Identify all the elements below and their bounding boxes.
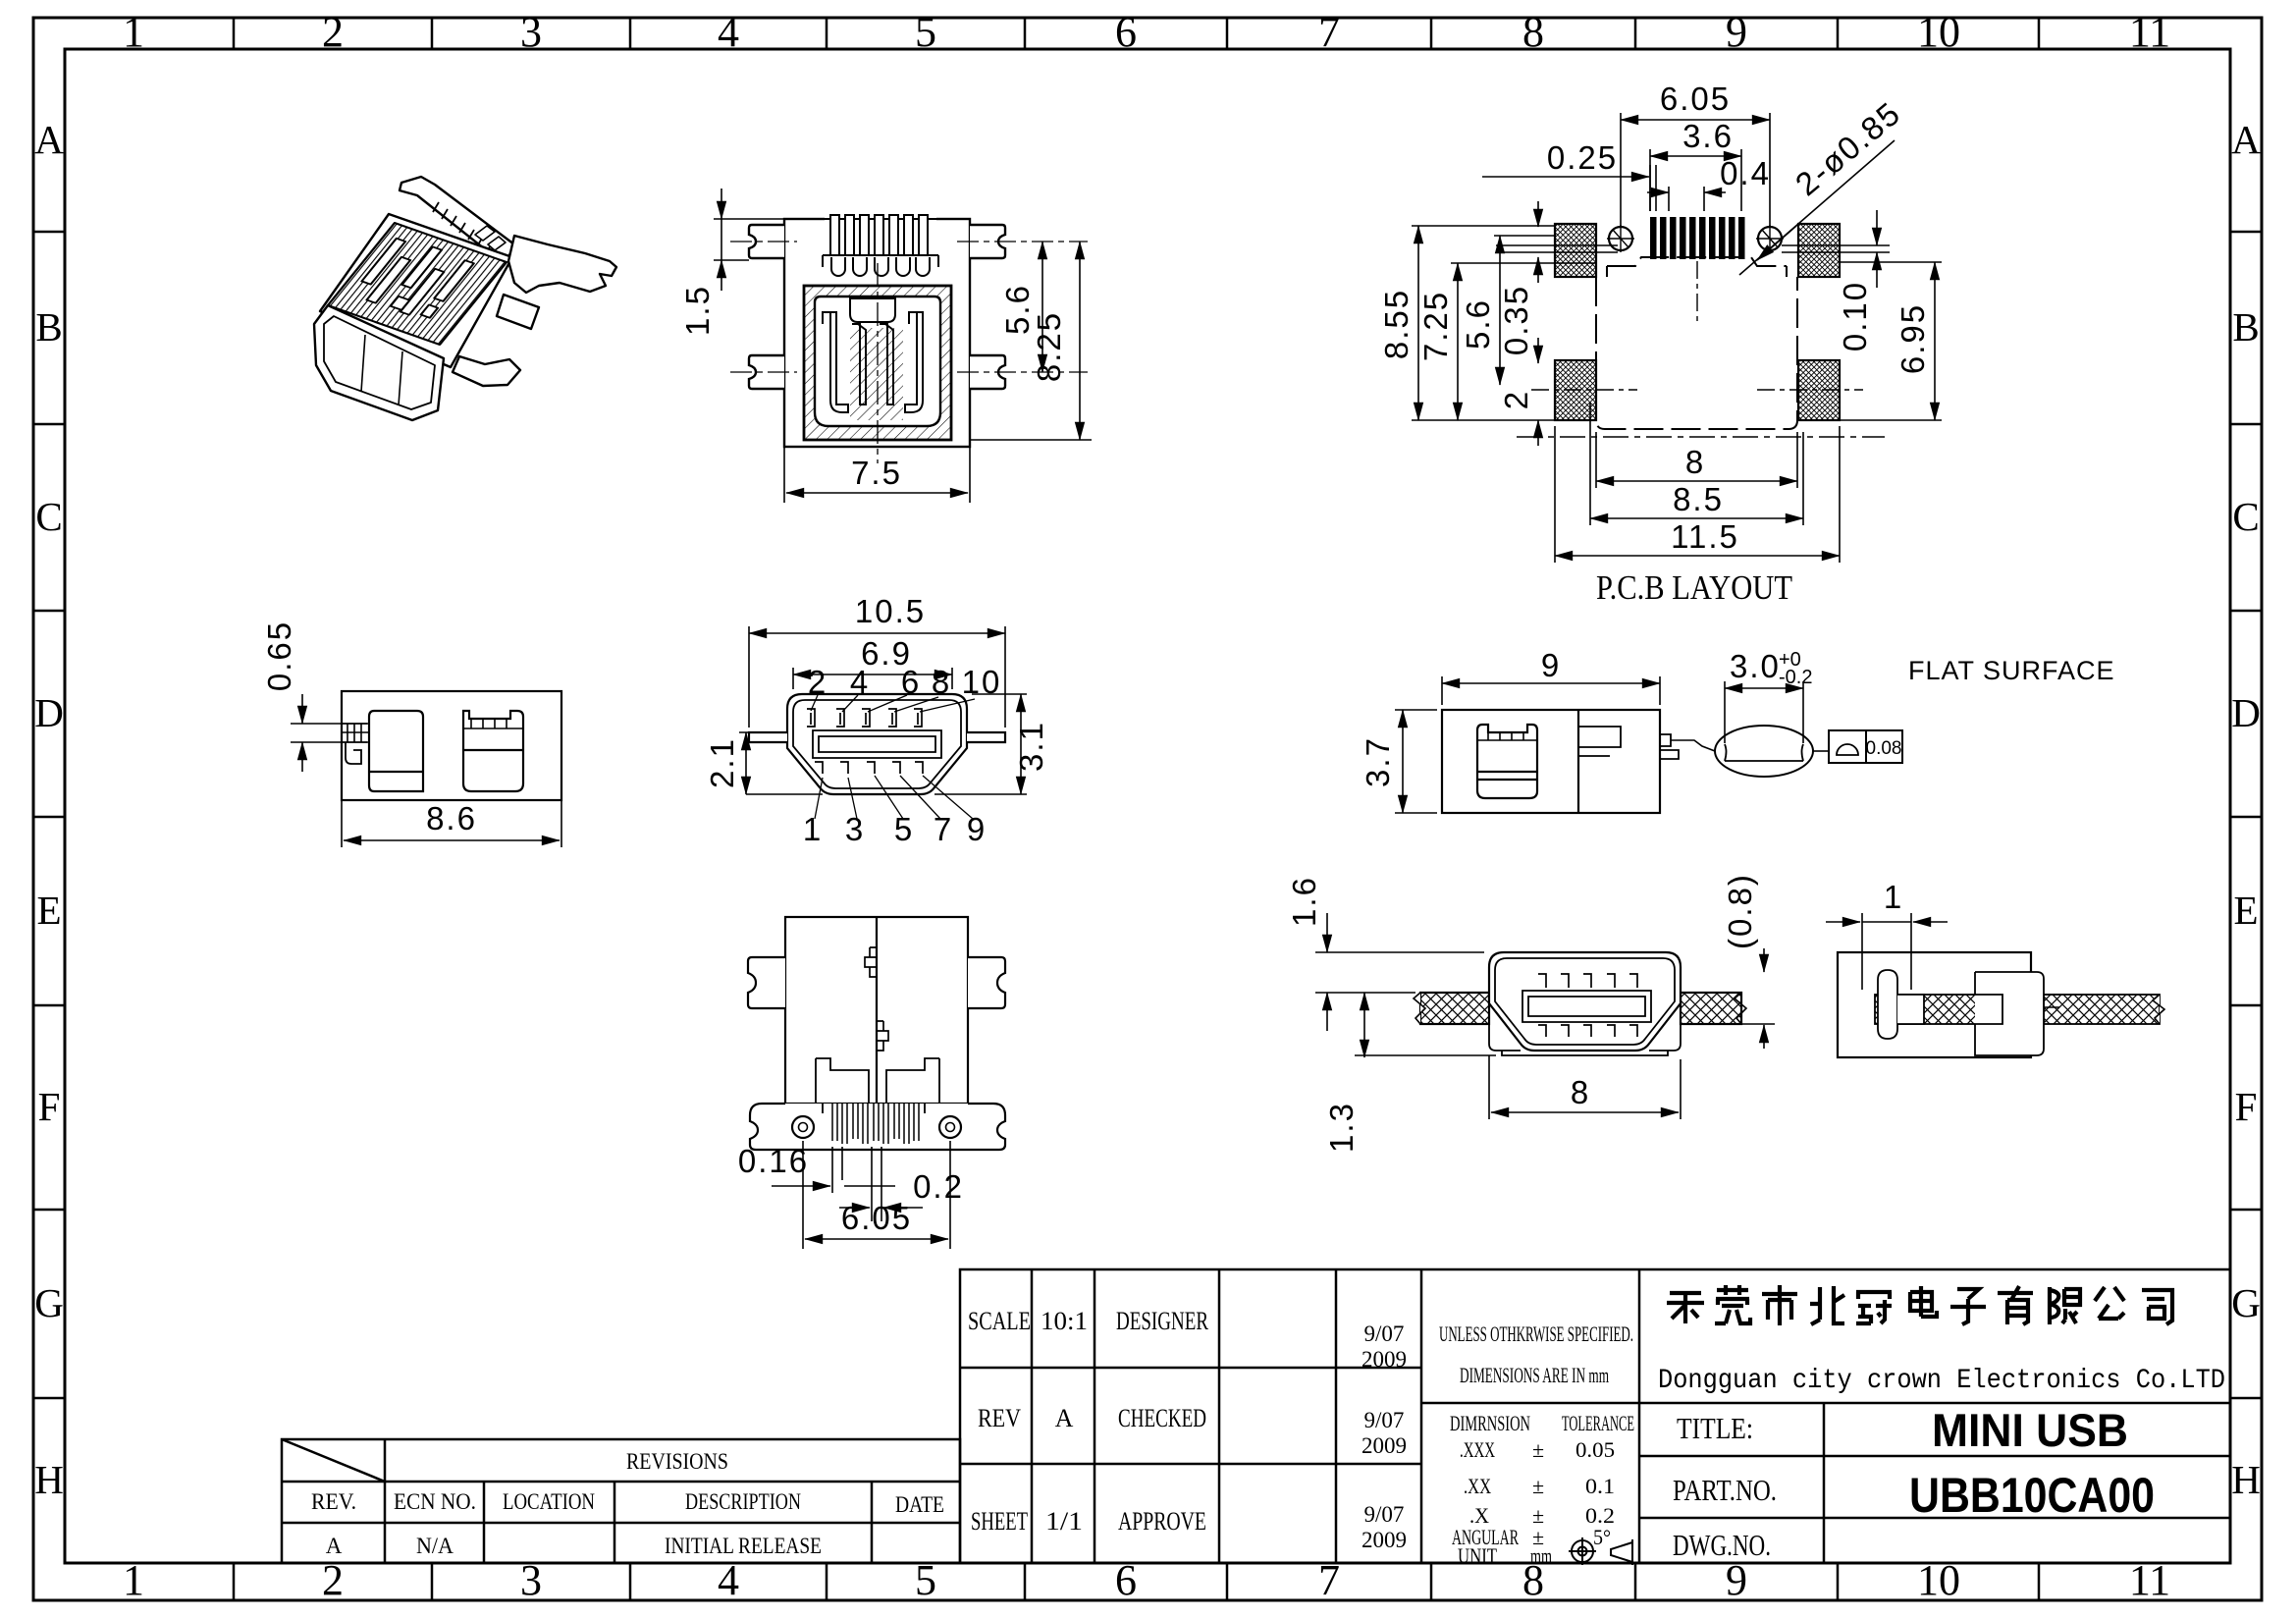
svg-text:DATE: DATE [895, 1492, 944, 1517]
svg-text:Dongguan city crown Electronic: Dongguan city crown Electronics Co.LTD [1658, 1366, 2225, 1396]
svg-text:8: 8 [1685, 444, 1705, 480]
svg-text:.XXX: .XXX [1460, 1437, 1495, 1462]
svg-text:6.05: 6.05 [1660, 81, 1731, 117]
svg-text:5°: 5° [1593, 1525, 1611, 1549]
svg-text:E: E [2233, 888, 2258, 933]
svg-text:0.16: 0.16 [738, 1143, 809, 1179]
svg-text:0.25: 0.25 [1547, 139, 1618, 176]
svg-text:0.10: 0.10 [1837, 281, 1873, 351]
svg-text:A: A [2231, 117, 2261, 162]
svg-text:8.25: 8.25 [1031, 311, 1067, 382]
svg-text:B: B [35, 304, 62, 350]
svg-text:9/07: 9/07 [1364, 1408, 1405, 1432]
svg-text:CHECKED: CHECKED [1118, 1404, 1206, 1432]
svg-text:0.65: 0.65 [261, 620, 297, 691]
svg-text:A: A [326, 1534, 343, 1558]
svg-text:9/07: 9/07 [1364, 1502, 1405, 1527]
svg-text:7.25: 7.25 [1417, 291, 1454, 361]
svg-text:1.5: 1.5 [679, 285, 716, 336]
svg-text:F: F [2235, 1084, 2258, 1129]
svg-text:0.08: 0.08 [1866, 738, 1902, 759]
svg-text:0.35: 0.35 [1498, 285, 1534, 355]
svg-text:A: A [1055, 1404, 1074, 1432]
svg-text:.XX: .XX [1464, 1474, 1491, 1498]
svg-text:TITLE:: TITLE: [1677, 1411, 1753, 1445]
svg-text:9: 9 [967, 811, 987, 847]
svg-text:E: E [36, 888, 61, 933]
svg-text:7.5: 7.5 [851, 455, 902, 491]
svg-text:mm: mm [1530, 1543, 1552, 1568]
svg-text:3.1: 3.1 [1013, 721, 1049, 772]
svg-text:FLAT SURFACE: FLAT SURFACE [1908, 656, 2115, 685]
svg-text:DWG.NO.: DWG.NO. [1673, 1528, 1771, 1562]
svg-text:3.6: 3.6 [1682, 118, 1734, 154]
svg-text:±: ± [1532, 1474, 1544, 1498]
svg-text:2009: 2009 [1362, 1528, 1407, 1552]
svg-text:H: H [34, 1457, 64, 1502]
svg-text:H: H [2231, 1457, 2261, 1502]
svg-text:PART.NO.: PART.NO. [1673, 1473, 1777, 1507]
svg-text:C: C [2232, 494, 2259, 539]
svg-text:1/1: 1/1 [1045, 1507, 1083, 1536]
svg-text:G: G [2231, 1280, 2261, 1325]
svg-text:UNIT: UNIT [1458, 1543, 1497, 1568]
svg-text:2: 2 [1498, 390, 1534, 409]
svg-text:8.5: 8.5 [1673, 481, 1724, 517]
svg-text:1.3: 1.3 [1323, 1102, 1360, 1153]
svg-text:6.9: 6.9 [861, 635, 912, 672]
svg-text:2009: 2009 [1362, 1433, 1407, 1458]
svg-text:3.7: 3.7 [1360, 736, 1396, 787]
svg-text:8.55: 8.55 [1378, 289, 1415, 359]
svg-text:D: D [2231, 690, 2261, 735]
svg-text:10: 10 [1917, 8, 1960, 56]
svg-text:D: D [34, 690, 64, 735]
svg-text:1.6: 1.6 [1286, 876, 1322, 927]
svg-text:3: 3 [845, 811, 865, 847]
svg-text:P.C.B LAYOUT: P.C.B LAYOUT [1596, 568, 1792, 607]
svg-text:A: A [34, 117, 64, 162]
svg-text:0.05: 0.05 [1575, 1437, 1615, 1462]
svg-text:8: 8 [1522, 8, 1544, 56]
svg-text:6.05: 6.05 [841, 1200, 912, 1236]
svg-text:8: 8 [1571, 1074, 1590, 1110]
svg-text:9/07: 9/07 [1364, 1321, 1405, 1346]
svg-text:1: 1 [1884, 879, 1903, 915]
svg-text:B: B [2232, 304, 2259, 350]
svg-text:REV.: REV. [311, 1489, 356, 1514]
svg-text:SCALE: SCALE [968, 1307, 1031, 1335]
svg-text:DIMRNSION: DIMRNSION [1450, 1411, 1530, 1435]
svg-text:REVISIONS: REVISIONS [626, 1449, 728, 1474]
svg-text:TOLERANCE: TOLERANCE [1562, 1411, 1634, 1435]
svg-text:ECN NO.: ECN NO. [394, 1489, 476, 1514]
svg-text:UBB10CA00: UBB10CA00 [1909, 1468, 2155, 1523]
svg-text:6: 6 [1115, 8, 1137, 56]
svg-text:2: 2 [322, 8, 344, 56]
svg-text:INITIAL RELEASE: INITIAL RELEASE [665, 1534, 822, 1558]
svg-text:5: 5 [915, 8, 936, 56]
svg-text:0.2: 0.2 [913, 1168, 964, 1205]
svg-text:0.4: 0.4 [1720, 155, 1771, 191]
svg-text:11: 11 [2129, 8, 2170, 56]
svg-text:8.6: 8.6 [426, 800, 477, 836]
svg-text:10:1: 10:1 [1041, 1307, 1088, 1335]
svg-text:8: 8 [932, 664, 951, 700]
svg-text:2: 2 [808, 664, 828, 700]
svg-text:DIMENSIONS ARE IN mm: DIMENSIONS ARE IN mm [1460, 1363, 1609, 1387]
svg-text:N/A: N/A [416, 1534, 454, 1558]
svg-text:5.6: 5.6 [1460, 298, 1496, 350]
svg-text:5: 5 [894, 811, 914, 847]
svg-text:SHEET: SHEET [971, 1507, 1028, 1536]
svg-text:UNLESS OTHKRWISE SPECIFIED.: UNLESS OTHKRWISE SPECIFIED. [1439, 1321, 1633, 1346]
svg-text:10.5: 10.5 [855, 593, 926, 629]
svg-text:9: 9 [1726, 8, 1747, 56]
svg-text:F: F [38, 1084, 61, 1129]
svg-text:7: 7 [934, 811, 953, 847]
svg-text:11.5: 11.5 [1671, 518, 1739, 555]
svg-text:7: 7 [1318, 8, 1340, 56]
svg-text:G: G [34, 1280, 64, 1325]
svg-text:1: 1 [123, 8, 144, 56]
svg-text:C: C [35, 494, 62, 539]
svg-text:DESIGNER: DESIGNER [1116, 1307, 1208, 1335]
svg-text:LOCATION: LOCATION [503, 1489, 595, 1514]
svg-text:3.0: 3.0 [1730, 648, 1781, 684]
svg-text:3: 3 [520, 8, 542, 56]
svg-text:MINI USB: MINI USB [1932, 1404, 2128, 1456]
svg-text:REV: REV [978, 1404, 1021, 1432]
svg-text:2.1: 2.1 [704, 737, 740, 788]
svg-text:APPROVE: APPROVE [1118, 1507, 1206, 1536]
svg-text:6.95: 6.95 [1895, 303, 1931, 374]
svg-text:±: ± [1532, 1437, 1544, 1462]
svg-text:1: 1 [123, 1556, 144, 1604]
svg-text:9: 9 [1541, 647, 1561, 683]
svg-text:DESCRIPTION: DESCRIPTION [685, 1489, 801, 1514]
svg-text:-0.2: -0.2 [1779, 667, 1812, 688]
svg-text:0.1: 0.1 [1585, 1474, 1615, 1498]
svg-text:2009: 2009 [1362, 1347, 1407, 1372]
svg-text:(0.8): (0.8) [1722, 873, 1758, 949]
svg-text:1: 1 [803, 811, 823, 847]
svg-text:4: 4 [718, 8, 739, 56]
